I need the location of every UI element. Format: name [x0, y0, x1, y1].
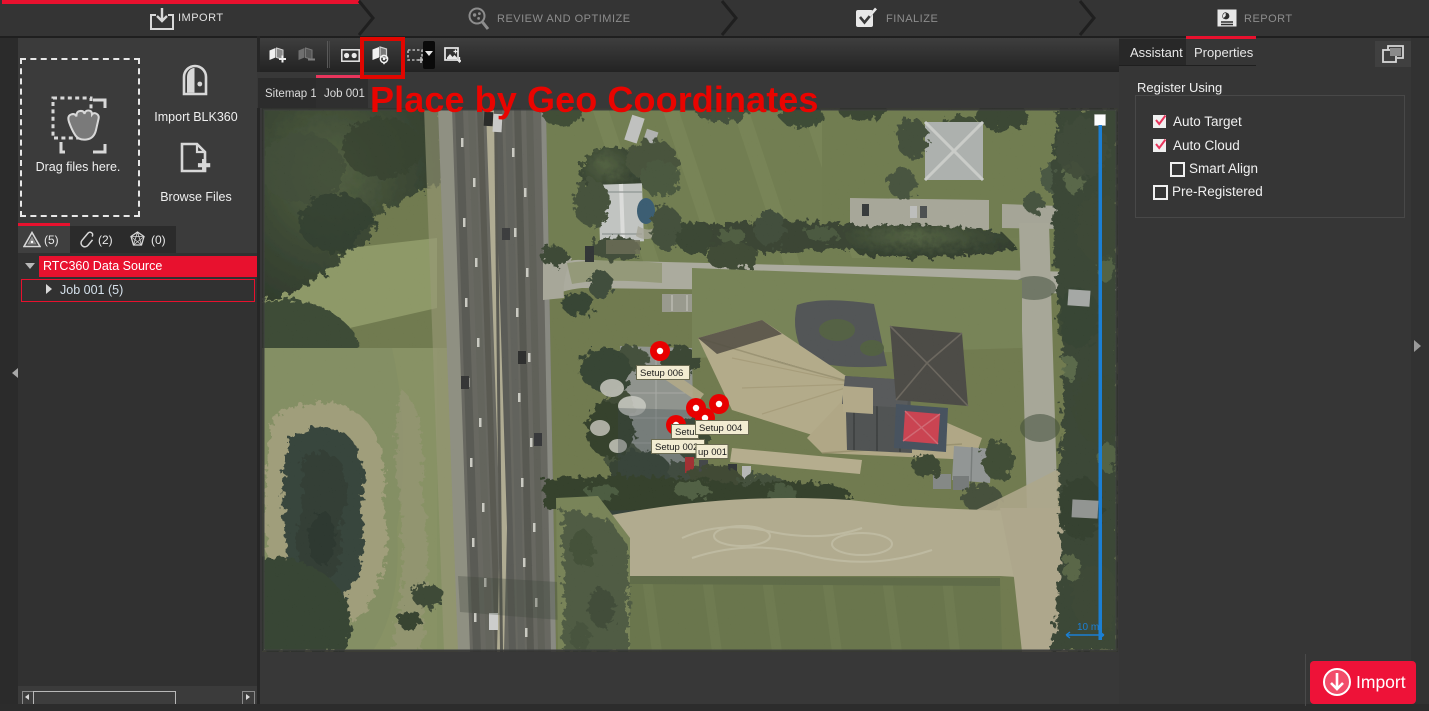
svg-text:up 001: up 001	[698, 447, 727, 458]
svg-text:Setu: Setu	[675, 427, 695, 438]
svg-text:Setup 004: Setup 004	[699, 423, 742, 434]
svg-text:10 m: 10 m	[1077, 622, 1099, 633]
svg-text:Setup 006: Setup 006	[640, 368, 683, 379]
svg-text:Setup 002: Setup 002	[655, 442, 698, 453]
